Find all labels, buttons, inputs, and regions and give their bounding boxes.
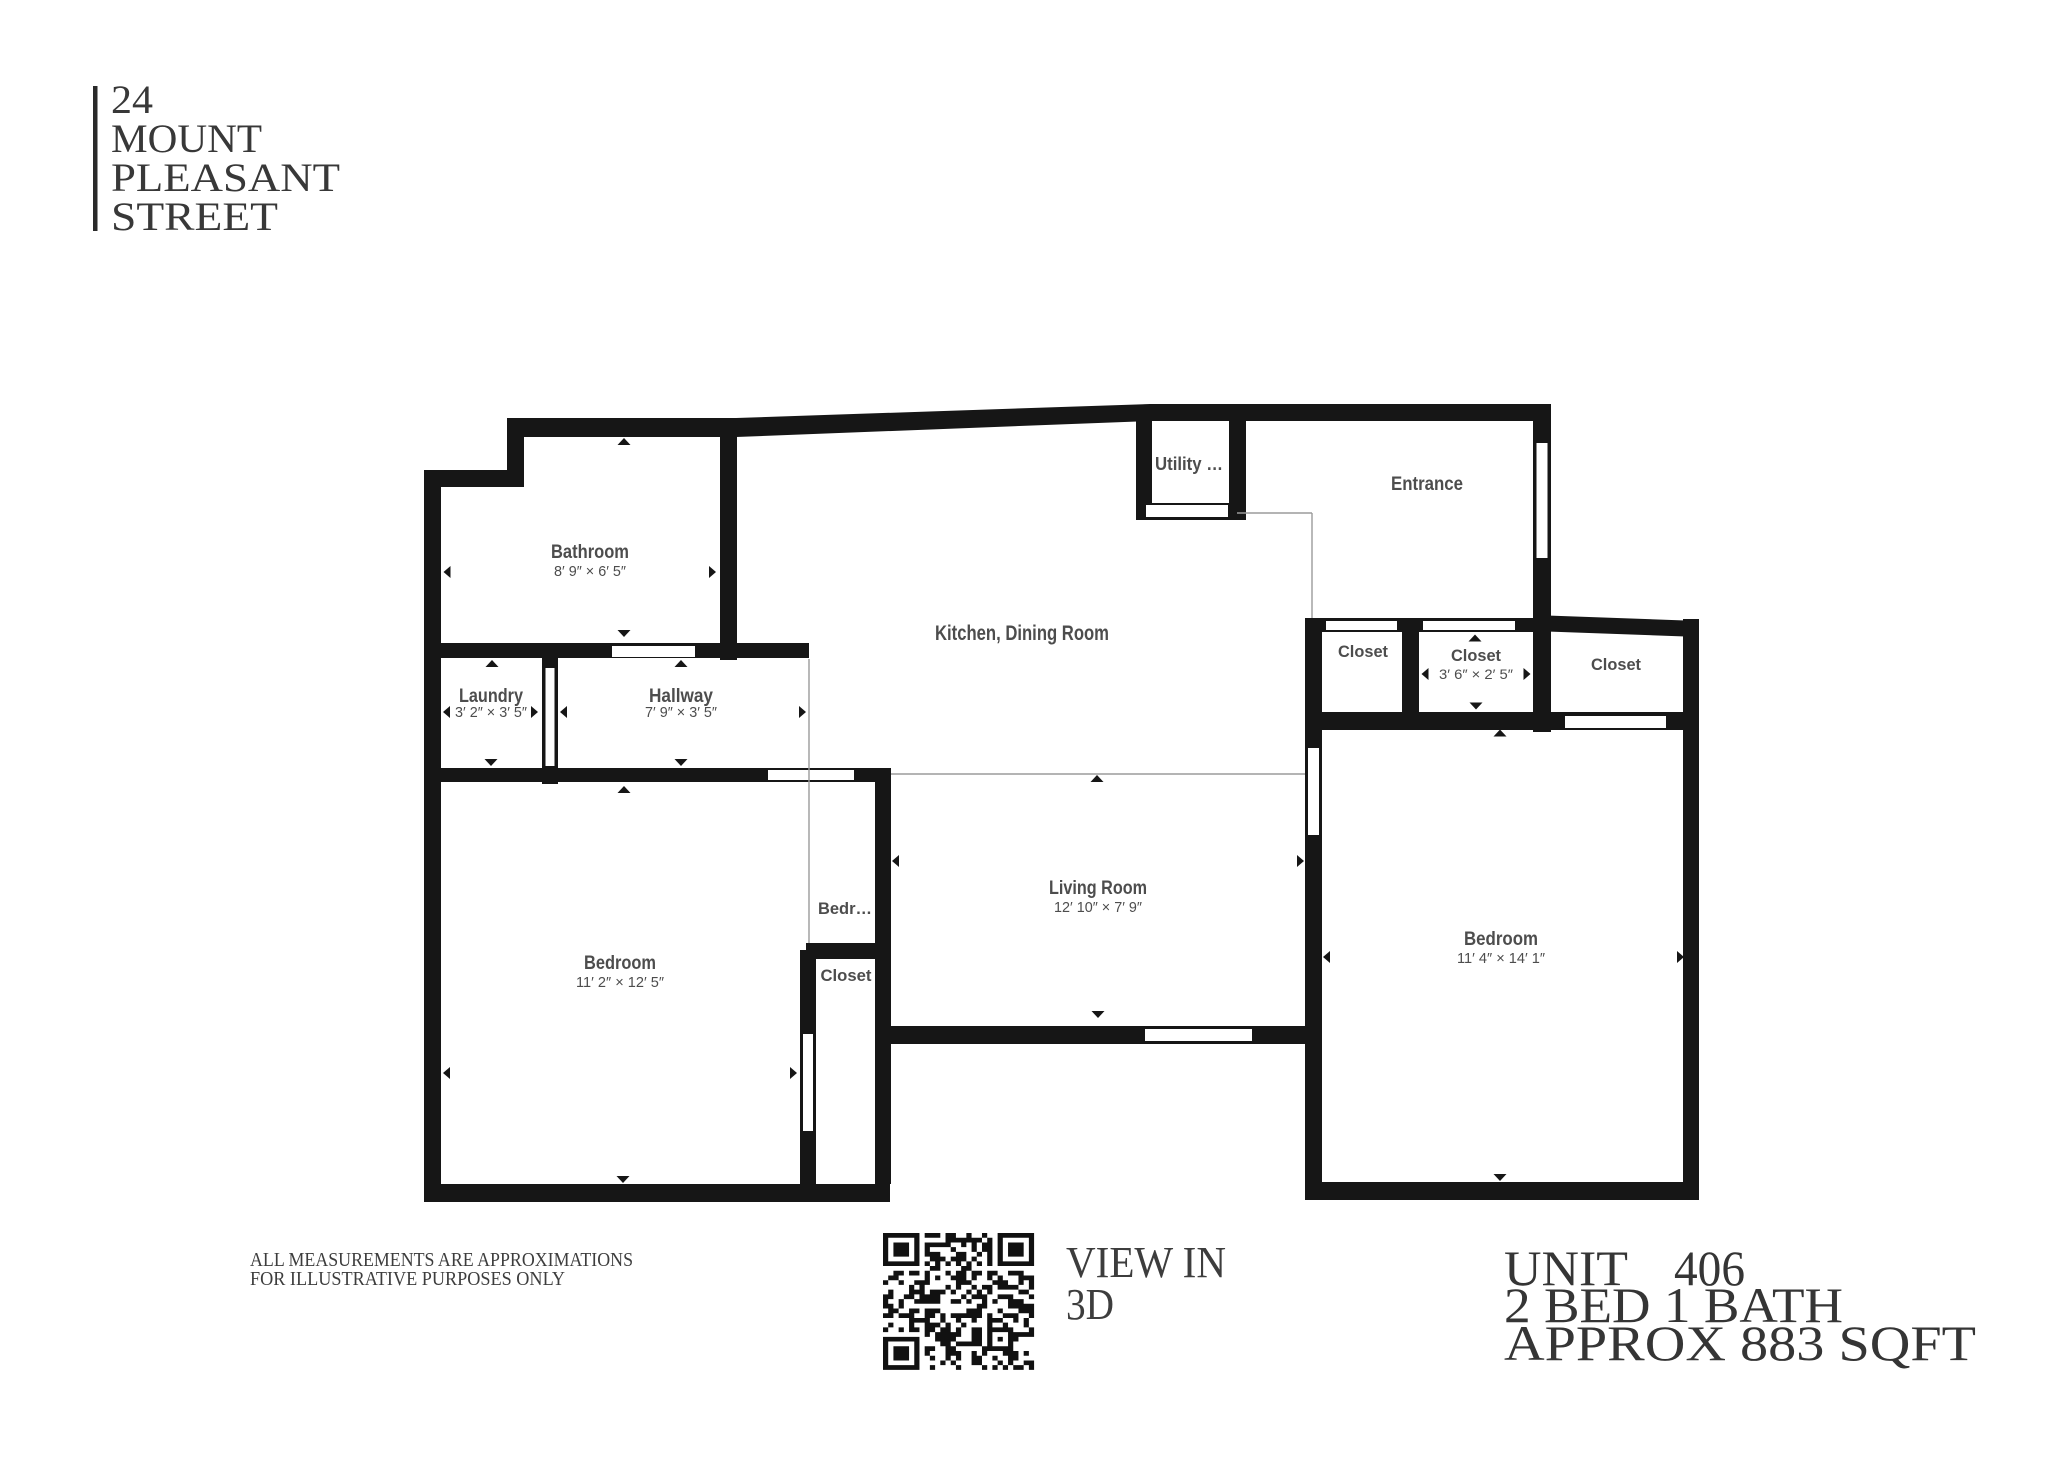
svg-text:FOR ILLUSTRATIVE PURPOSES ONLY: FOR ILLUSTRATIVE PURPOSES ONLY [250,1268,565,1290]
svg-text:8′ 9″ × 6′ 5″: 8′ 9″ × 6′ 5″ [554,563,627,580]
svg-text:7′ 9″ × 3′ 5″: 7′ 9″ × 3′ 5″ [645,704,718,721]
svg-text:Closet: Closet [1591,655,1641,674]
svg-text:11′ 2″ × 12′ 5″: 11′ 2″ × 12′ 5″ [576,974,665,991]
svg-text:11′ 4″ × 14′ 1″: 11′ 4″ × 14′ 1″ [1457,950,1546,967]
svg-text:3′ 6″ × 2′ 5″: 3′ 6″ × 2′ 5″ [1439,666,1513,682]
svg-text:3′ 2″ × 3′ 5″: 3′ 2″ × 3′ 5″ [455,704,528,721]
svg-text:Bedroom: Bedroom [1464,929,1538,950]
svg-text:Bathroom: Bathroom [551,542,629,563]
svg-text:APPROX 883 SQFT: APPROX 883 SQFT [1504,1315,1976,1371]
svg-text:STREET: STREET [111,194,278,239]
svg-text:Closet: Closet [821,966,872,985]
svg-text:Closet: Closet [1451,646,1501,665]
svg-text:Utility …: Utility … [1155,454,1223,474]
svg-text:Closet: Closet [1338,642,1388,661]
svg-text:Living Room: Living Room [1049,878,1147,899]
svg-text:Bedr…: Bedr… [818,899,872,918]
svg-text:12′ 10″ × 7′ 9″: 12′ 10″ × 7′ 9″ [1054,899,1143,916]
svg-text:Kitchen, Dining Room: Kitchen, Dining Room [935,622,1109,645]
svg-text:3D: 3D [1066,1280,1114,1329]
svg-text:Bedroom: Bedroom [584,953,656,974]
svg-text:Entrance: Entrance [1391,474,1463,495]
